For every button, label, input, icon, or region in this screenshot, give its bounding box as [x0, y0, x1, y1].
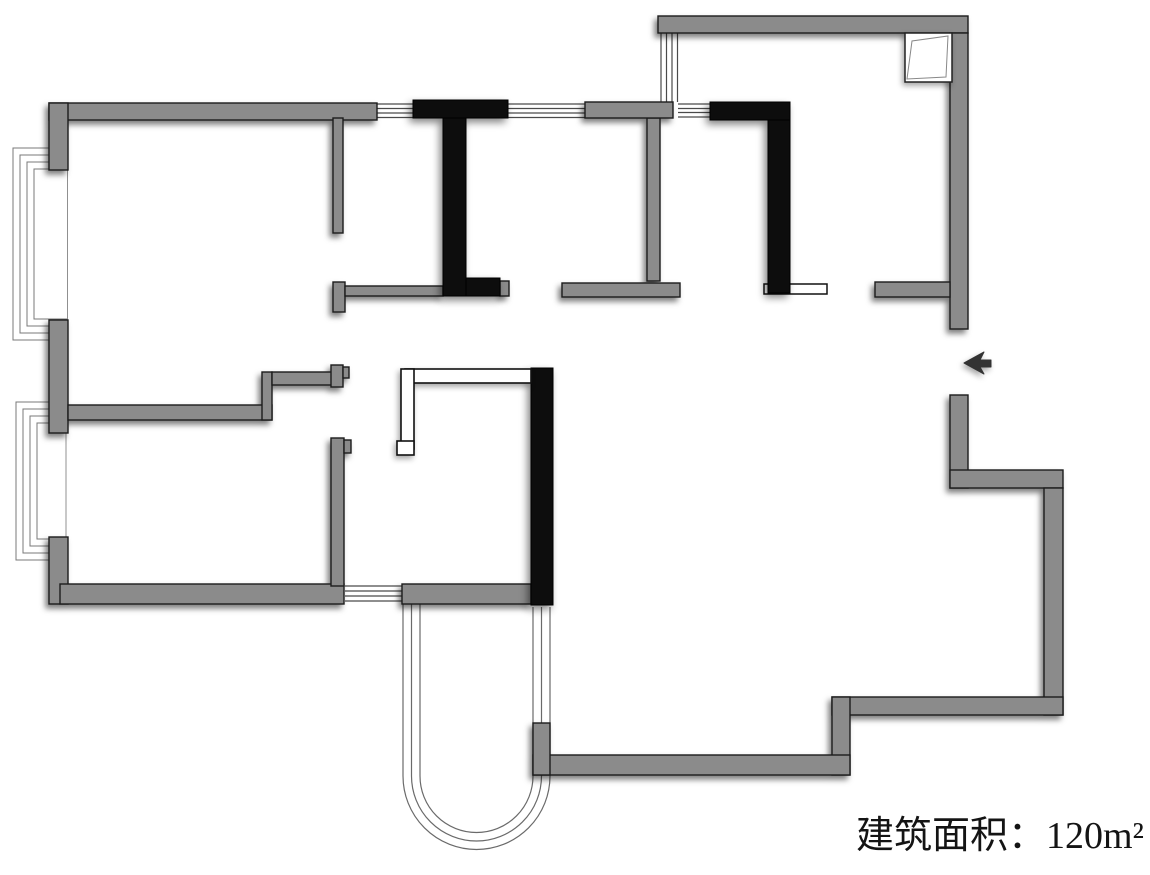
gray-wall: [533, 723, 550, 775]
building-area-label: 建筑面积：120m²: [856, 816, 1144, 858]
partition-outline: [405, 369, 531, 383]
gray-wall: [262, 372, 272, 420]
gray-wall: [832, 697, 1063, 715]
entry-arrow-icon: [964, 352, 991, 374]
gray-wall: [60, 584, 344, 604]
gray-wall: [533, 755, 850, 775]
gray-wall: [1044, 488, 1063, 715]
bay-window-line: [27, 162, 67, 326]
gray-wall: [331, 365, 343, 387]
gray-wall: [68, 405, 272, 420]
bay-window-line: [34, 169, 67, 319]
gray-wall: [562, 283, 680, 297]
gray-wall: [345, 286, 443, 296]
gray-wall: [585, 102, 673, 118]
bay-window-line: [13, 148, 67, 340]
gray-wall: [49, 103, 68, 170]
arc-window-line: [403, 603, 550, 850]
bay-window-line: [30, 416, 67, 546]
gray-wall: [658, 16, 968, 33]
gray-wall: [49, 103, 377, 120]
arc-window-line: [412, 603, 542, 841]
gray-wall: [500, 281, 509, 296]
gray-wall: [343, 367, 349, 378]
gray-wall: [333, 282, 345, 312]
floorplan-svg: [0, 0, 1150, 875]
black-wall: [413, 100, 508, 118]
black-wall: [531, 368, 553, 605]
windows-layer: [13, 33, 827, 850]
gray-wall: [272, 372, 333, 385]
partition-outline: [397, 441, 414, 455]
black-wall: [768, 120, 790, 293]
details-layer: [397, 33, 991, 455]
black-wall: [710, 102, 790, 120]
gray-wall: [875, 282, 950, 297]
gray-wall: [402, 584, 531, 604]
bay-window-line: [37, 423, 67, 539]
gray-wall: [49, 320, 68, 433]
black-wall: [466, 278, 500, 296]
gray-wall: [950, 470, 1063, 488]
gray-wall: [331, 438, 344, 586]
black-wall: [443, 118, 466, 296]
gray-wall: [647, 118, 660, 281]
black-walls-layer: [413, 100, 790, 605]
partition-outline: [401, 369, 414, 449]
floorplan-page: 建筑面积：120m²: [0, 0, 1150, 875]
gray-wall: [344, 440, 351, 453]
flue-box: [905, 33, 952, 82]
gray-walls-layer: [49, 16, 1063, 775]
arc-window-line: [420, 603, 533, 833]
gray-wall: [333, 118, 343, 233]
